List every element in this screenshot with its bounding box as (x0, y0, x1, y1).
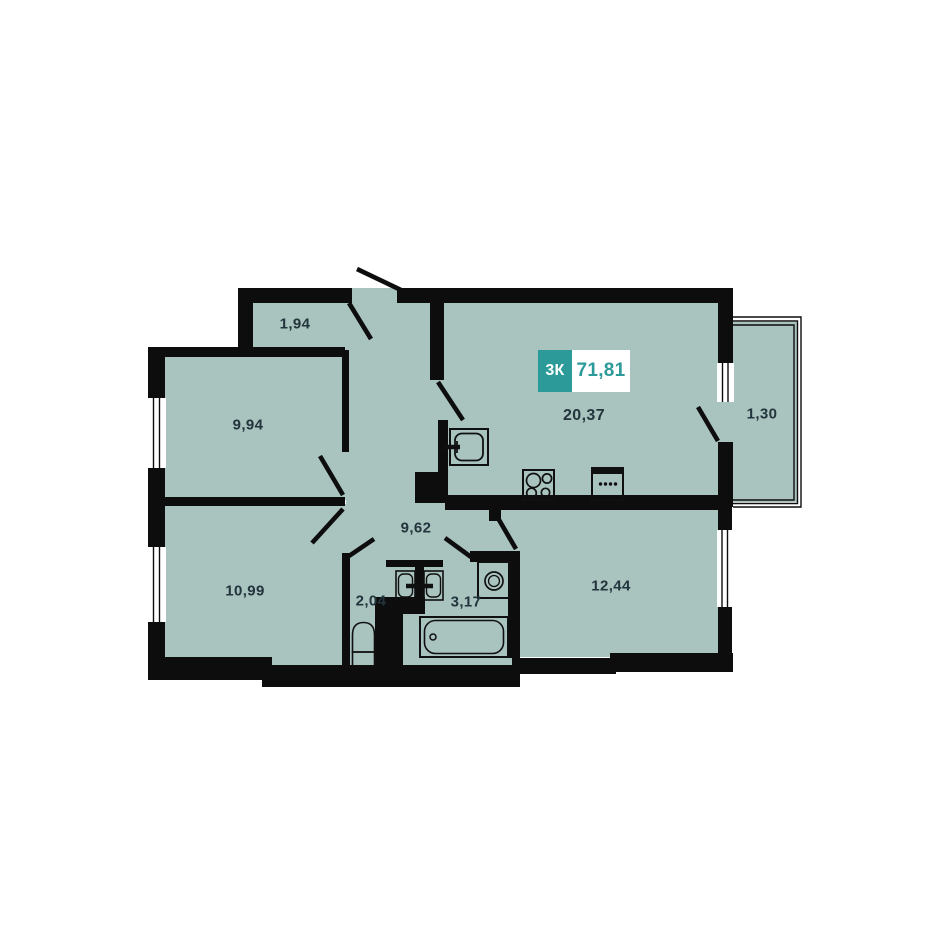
room-label-hallway: 9,62 (401, 520, 432, 537)
wall-segment (445, 495, 720, 510)
wall-segment (386, 560, 443, 567)
room-label-kitchen-living: 20,37 (563, 407, 605, 425)
wall-segment (430, 303, 444, 380)
floor-plan: 1,94 9,94 20,37 1,30 9,62 10,99 2,04 3,1… (0, 0, 950, 950)
window (147, 547, 166, 622)
wall-segment (148, 347, 345, 357)
wall-segment (718, 288, 733, 363)
wall-segment (148, 657, 272, 680)
window (717, 530, 733, 607)
window (147, 398, 166, 468)
floor-kitchen-living (444, 303, 720, 500)
wall-segment (718, 507, 732, 530)
room-label-bathroom: 3,17 (451, 594, 482, 611)
room-label-bedroom-top: 9,94 (233, 417, 264, 434)
wall-segment (238, 288, 352, 303)
wall-segment (148, 497, 345, 506)
wall-segment (238, 288, 253, 357)
wall-segment (415, 472, 448, 503)
window (717, 363, 734, 402)
wall-segment (512, 658, 616, 674)
apartment-total-area: 71,81 (572, 350, 630, 392)
room-label-closet: 1,94 (280, 316, 311, 333)
wall-segment (718, 442, 733, 507)
room-label-wc: 2,04 (356, 593, 387, 610)
floor-balcony-doorway (717, 402, 734, 442)
door-entrance (357, 269, 403, 291)
wall-segment (375, 597, 403, 682)
room-label-bedroom-right: 12,44 (591, 578, 631, 595)
floor-entry-patch (352, 288, 397, 303)
wall-segment (148, 347, 165, 680)
floor-entry-hall (345, 303, 444, 500)
room-label-balcony: 1,30 (747, 406, 778, 423)
apartment-type-badge: 3К (538, 350, 572, 392)
wall-segment (397, 288, 733, 303)
apartment-badge: 3К 71,81 (538, 350, 630, 392)
floor-hallway-lower (346, 500, 518, 666)
wall-segment (718, 607, 732, 653)
floor-plan-drawing (0, 0, 950, 950)
wall-segment (342, 553, 350, 665)
wall-segment (610, 653, 733, 672)
room-label-bedroom-bottom: 10,99 (225, 583, 265, 600)
wall-segment (342, 350, 349, 452)
